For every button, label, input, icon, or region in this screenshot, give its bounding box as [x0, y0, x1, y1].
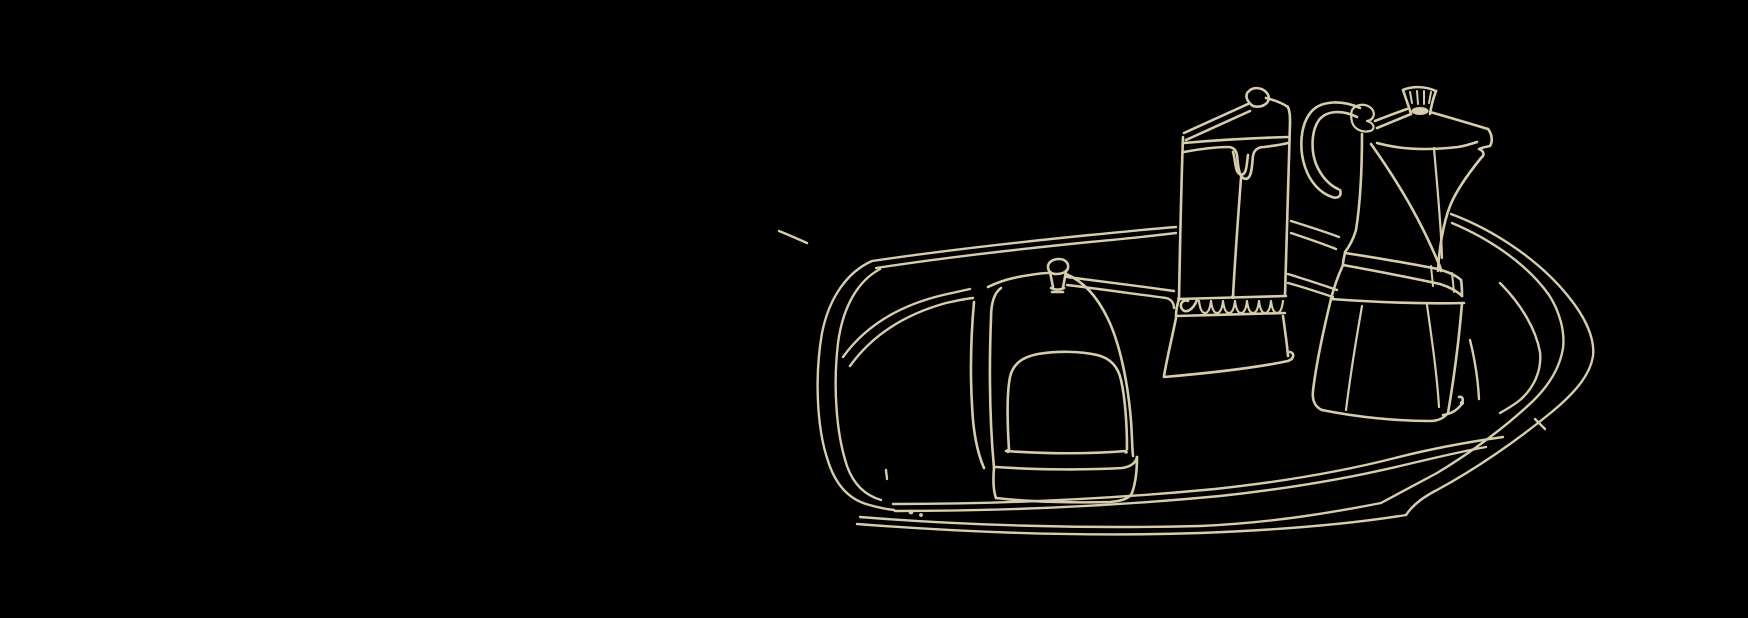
dish-dot-a	[1006, 449, 1010, 453]
artwork-canvas	[0, 0, 1748, 618]
moka-finial-base-blob	[1412, 107, 1429, 115]
pitcher-dot-b	[1177, 297, 1181, 301]
dish-dot-b	[1124, 450, 1128, 454]
moka-curl-dot	[1460, 401, 1464, 405]
moka-waist-right	[1461, 280, 1462, 296]
tray-floor-tick	[886, 470, 887, 479]
tray-dot-a	[909, 510, 914, 515]
tray-dot-b	[919, 513, 923, 517]
pitcher-dot-a	[1231, 295, 1235, 299]
line-drawing	[0, 0, 1748, 618]
